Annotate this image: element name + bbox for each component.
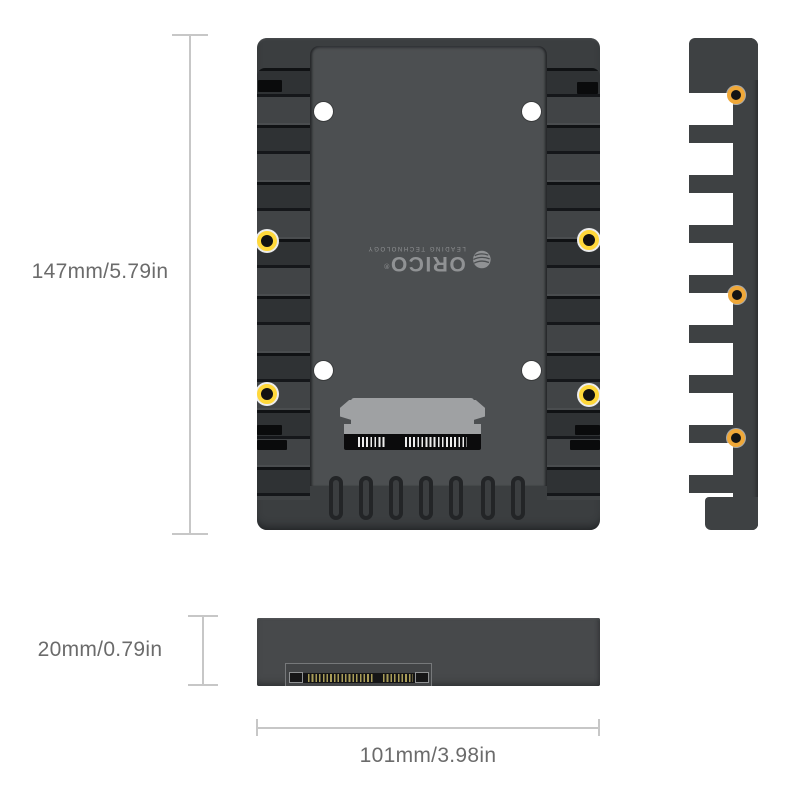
connector-end-block [289, 672, 303, 683]
side-screw-hole-gold [728, 286, 746, 304]
rail-vent-inset [258, 80, 282, 92]
bay-screw-hole-gold [579, 230, 599, 250]
width-dim-tick-left [256, 719, 258, 736]
rail-vent-inset [575, 425, 600, 435]
side-rail-column [733, 38, 758, 530]
side-view [689, 38, 758, 530]
rail-vent-inset [570, 440, 600, 450]
product-dimension-diagram: 147mm/5.79in 20mm/0.79in 101mm/3.98in [0, 0, 800, 800]
side-rail-teeth [689, 75, 735, 493]
comb-slot [359, 476, 373, 520]
comb-slot [389, 476, 403, 520]
drive-screw-hole [522, 102, 541, 121]
drive-screw-hole [314, 361, 333, 380]
thickness-dim-cap-bottom [188, 684, 218, 686]
bay-screw-hole-gold [257, 384, 277, 404]
connector-housing [351, 398, 474, 424]
height-dim-cap-bottom [172, 533, 208, 535]
registered-mark: ® [384, 262, 389, 269]
bottom-edge-view [257, 618, 600, 686]
connector-recess [285, 663, 432, 686]
brand-tagline: LEADING TECHNOLOGY [367, 246, 466, 252]
sata-data-pins-bottom [383, 674, 413, 682]
comb-slot [511, 476, 525, 520]
thickness-dim-label: 20mm/0.79in [15, 638, 185, 662]
width-dim-line [257, 727, 600, 729]
width-dim-tick-right [598, 719, 600, 736]
rail-vent-inset [257, 425, 282, 435]
comb-slot [329, 476, 343, 520]
orico-globe-icon [473, 247, 491, 274]
sata-power-pins [405, 437, 467, 447]
height-dim-label: 147mm/5.79in [15, 260, 185, 284]
orico-logo: ORICO® LEADING TECHNOLOGY [367, 242, 491, 278]
bay-screw-hole-gold [579, 385, 599, 405]
brand-text: ORICO [389, 253, 465, 276]
comb-slot [419, 476, 433, 520]
bay-screw-hole-gold [257, 231, 277, 251]
connector-pin-strip [344, 434, 481, 450]
height-dim-cap-top [172, 34, 208, 36]
side-rail-top [689, 38, 758, 80]
front-left-rail [257, 68, 310, 500]
sata-connector-front [340, 398, 485, 452]
front-right-rail [547, 68, 600, 500]
thickness-dim-line [202, 616, 204, 685]
side-rail-bottom [705, 497, 758, 530]
comb-slot [481, 476, 495, 520]
height-dim-line [189, 35, 191, 534]
drive-screw-hole [314, 102, 333, 121]
rail-vent-inset [577, 82, 598, 94]
comb-slot [449, 476, 463, 520]
sata-data-pins [358, 437, 385, 447]
rail-vent-inset [257, 440, 287, 450]
side-screw-hole-gold [727, 86, 745, 104]
thickness-dim-cap-top [188, 615, 218, 617]
width-dim-label: 101mm/3.98in [323, 744, 533, 768]
connector-end-block [415, 672, 429, 683]
drive-screw-hole [522, 361, 541, 380]
side-screw-hole-gold [727, 429, 745, 447]
front-view: ORICO® LEADING TECHNOLOGY [257, 38, 600, 530]
orico-wordmark: ORICO® LEADING TECHNOLOGY [367, 246, 466, 275]
sata-power-pins-bottom [308, 674, 373, 682]
